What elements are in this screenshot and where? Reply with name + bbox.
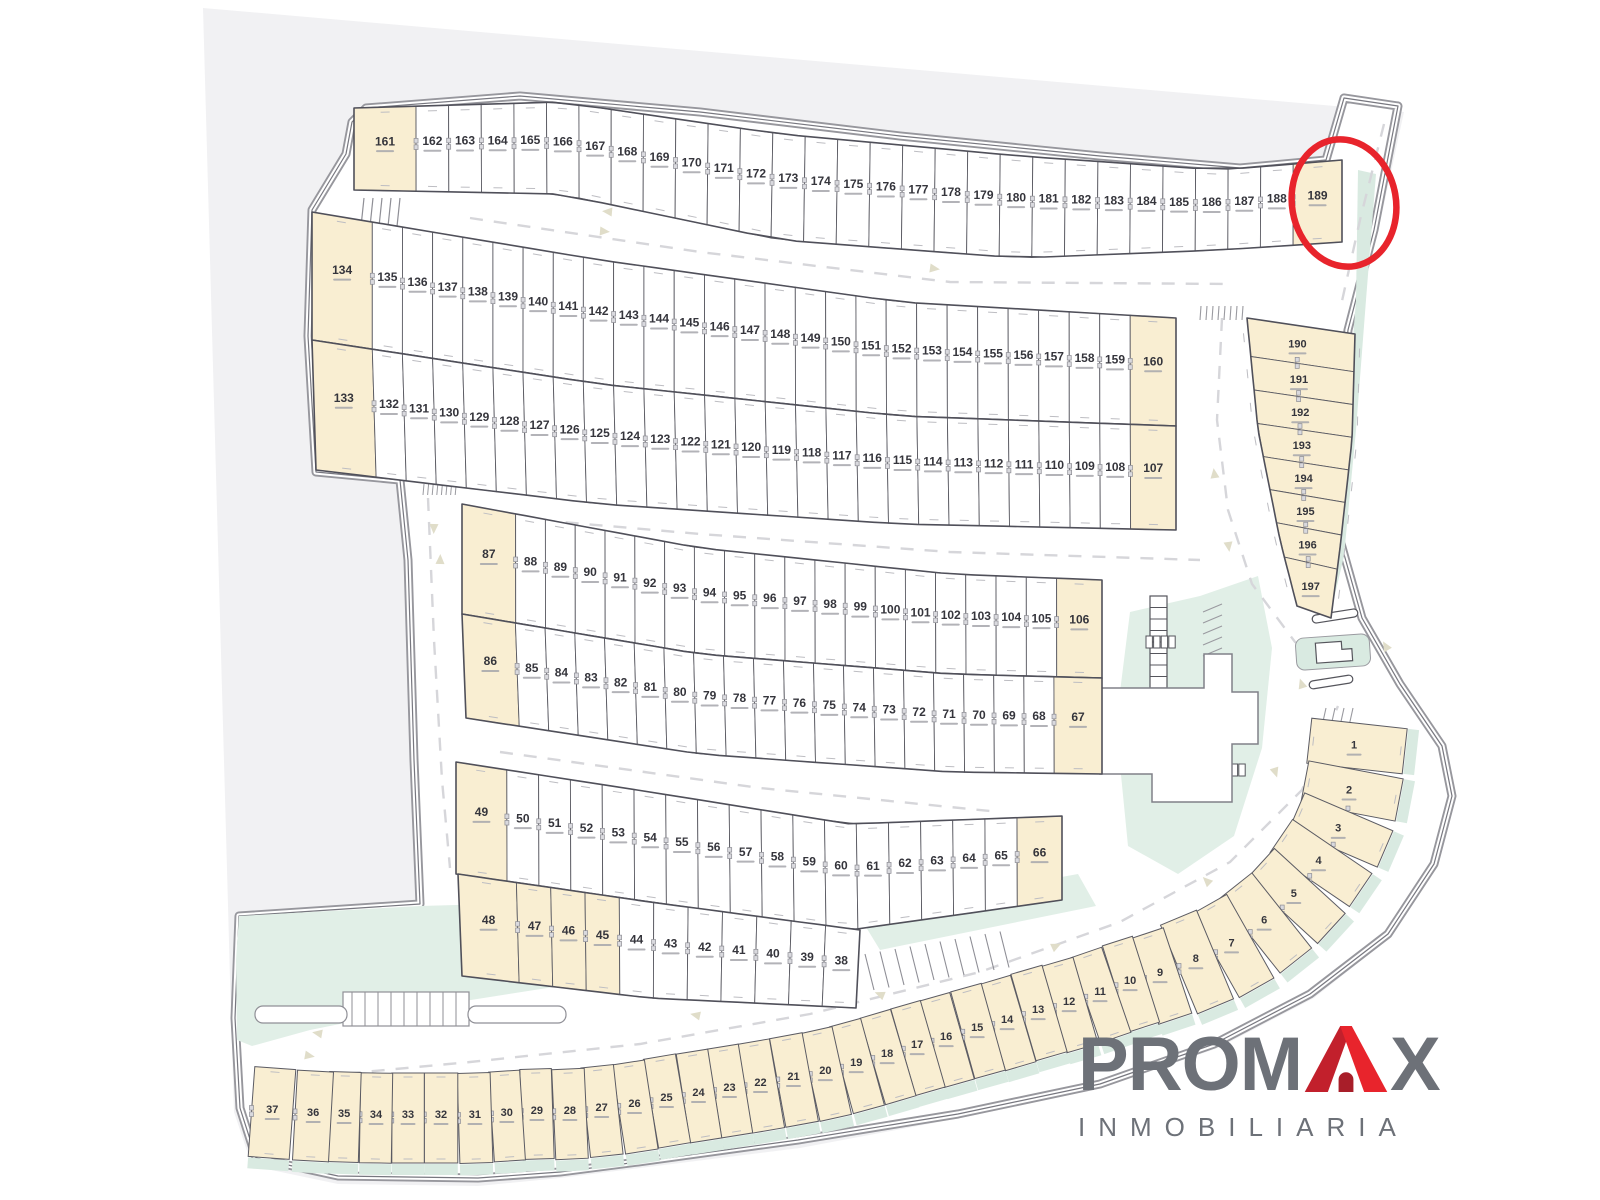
lot-number: 36 <box>307 1107 319 1119</box>
dimension-tick <box>748 509 757 510</box>
meter-icon <box>573 568 577 573</box>
meter-icon <box>462 413 466 418</box>
meter-icon <box>753 601 757 606</box>
lot-145: 145 <box>672 270 704 395</box>
meter-icon <box>1128 465 1132 470</box>
meter-icon <box>550 933 554 938</box>
meter-icon <box>704 441 708 446</box>
meter-icon <box>770 174 774 179</box>
dimension-tick <box>816 238 825 239</box>
meter-icon <box>600 828 604 833</box>
lot-147: 147 <box>733 279 765 402</box>
site-plan: 1611621631641651661671681691701711721731… <box>0 0 1600 1200</box>
lot-130: 130 <box>432 358 466 488</box>
lot-number: 70 <box>972 708 986 722</box>
lot-area-text <box>820 714 838 716</box>
meter-icon <box>574 673 578 678</box>
meter-icon <box>523 428 527 433</box>
meter-icon <box>402 405 406 410</box>
meter-icon <box>293 1109 297 1114</box>
parking-structure <box>343 992 469 1026</box>
lot-area-text <box>1072 208 1090 210</box>
lot-number: 57 <box>739 845 753 859</box>
lot-number: 51 <box>548 816 562 830</box>
lot-number: 24 <box>692 1087 705 1099</box>
meter-icon <box>664 838 668 843</box>
lot-number: 174 <box>811 174 831 188</box>
lot-182: 182 <box>1063 159 1098 256</box>
meter-icon <box>1098 465 1102 470</box>
lot-number: 5 <box>1291 888 1297 900</box>
lot-135: 135 <box>370 222 402 354</box>
lot-area-text <box>1045 474 1063 476</box>
dimension-tick <box>1355 450 1356 459</box>
lot-number: 54 <box>643 830 657 844</box>
meter-icon <box>1037 463 1041 468</box>
meter-icon <box>643 436 647 441</box>
lot-number: 31 <box>469 1109 481 1121</box>
lot-area-text <box>779 187 797 189</box>
lot-157: 157 <box>1037 310 1070 422</box>
lot-number: 45 <box>596 928 610 942</box>
lot-41: 41 <box>720 912 757 1003</box>
meter-icon <box>884 346 888 351</box>
lot-area-text <box>641 592 659 594</box>
meter-icon <box>505 814 509 819</box>
meter-icon <box>813 607 817 612</box>
meter-icon <box>1161 205 1165 210</box>
dimension-tick <box>1272 241 1281 242</box>
meter-icon <box>1128 365 1132 370</box>
lot-number: 124 <box>620 429 640 443</box>
lot-number: 42 <box>698 940 712 954</box>
lot-area-text <box>1295 487 1313 489</box>
lot-73: 73 <box>872 668 905 769</box>
dimension-tick <box>796 756 805 757</box>
lot-area-text <box>1007 206 1025 208</box>
lot-area-text <box>954 471 972 473</box>
meter-icon <box>822 956 826 961</box>
meter-icon <box>951 857 955 862</box>
lot-number: 91 <box>613 570 627 584</box>
dimension-tick <box>916 765 925 766</box>
meter-icon <box>686 943 690 948</box>
meter-icon <box>696 843 700 848</box>
lot-area-text <box>1015 473 1033 475</box>
meter-icon <box>793 341 797 346</box>
lot-162: 162 <box>414 105 449 192</box>
meter-icon <box>1052 714 1056 719</box>
dimension-tick <box>1110 319 1119 320</box>
lot-area-text <box>650 328 668 330</box>
lot-area-text <box>1203 211 1221 213</box>
lot-number: 63 <box>930 854 944 868</box>
lot-172: 172 <box>738 128 773 238</box>
meter-icon <box>919 860 923 865</box>
lot-33: 33 <box>390 1073 425 1163</box>
lot-area-text <box>500 430 518 432</box>
lot-97: 97 <box>783 557 815 663</box>
lot-area-text <box>521 149 539 151</box>
meter-icon <box>934 618 938 623</box>
meter-icon <box>414 138 418 143</box>
lot-number: 12 <box>1063 996 1075 1008</box>
meter-icon <box>577 147 581 152</box>
lot-area-text <box>1093 1000 1108 1002</box>
lot-106: 106 <box>1055 578 1102 678</box>
lot-167: 167 <box>577 105 611 205</box>
lot-area-text <box>552 682 570 684</box>
lot-49: 49 <box>456 762 507 881</box>
lot-number: 137 <box>438 280 458 294</box>
lot-area-text <box>1062 1010 1077 1012</box>
lot-46: 46 <box>550 888 587 991</box>
lot-160: 160 <box>1128 315 1176 426</box>
meter-icon <box>763 330 767 335</box>
lot-44: 44 <box>618 898 654 999</box>
green-edge-strip <box>495 1161 527 1174</box>
lot-area-text <box>803 461 821 463</box>
lot-area-text <box>659 1106 674 1108</box>
lot-area-text <box>560 939 578 941</box>
lot-number: 161 <box>375 134 395 148</box>
lot-number: 65 <box>994 848 1008 862</box>
lot-area-text <box>731 707 749 709</box>
meter-icon <box>569 824 573 829</box>
meter-icon <box>977 467 981 472</box>
lot-area-text <box>896 872 914 874</box>
meter-icon <box>672 319 676 324</box>
lot-71: 71 <box>932 673 965 773</box>
plan-page: 1611621631641651661671681691701711721731… <box>0 0 1600 1200</box>
lot-area-text <box>440 421 458 423</box>
lot-129: 129 <box>462 363 496 492</box>
dimension-tick <box>1239 243 1248 244</box>
lot-187: 187 <box>1226 167 1261 250</box>
meter-icon <box>933 195 937 200</box>
lot-number: 162 <box>422 134 442 148</box>
lot-161: 161 <box>354 106 416 191</box>
lot-number: 84 <box>555 666 569 680</box>
lot-area-text <box>849 1071 864 1073</box>
meter-icon <box>491 299 495 304</box>
meter-icon <box>822 962 826 967</box>
utility-grid <box>1154 636 1160 648</box>
meter-icon <box>1177 964 1181 969</box>
lot-number: 156 <box>1013 348 1033 362</box>
dimension-tick <box>1313 238 1322 239</box>
lot-146: 146 <box>703 275 735 399</box>
meter-icon <box>945 356 949 361</box>
lot-number: 157 <box>1044 350 1064 364</box>
lot-area-text <box>609 841 627 843</box>
meter-icon <box>720 952 724 957</box>
meter-icon <box>250 1106 254 1111</box>
lot-85: 85 <box>515 623 549 731</box>
meter-icon <box>402 411 406 416</box>
meter-icon <box>795 449 799 454</box>
meter-icon <box>1259 203 1263 208</box>
lot-area-text <box>561 438 579 440</box>
lot-area-text <box>621 445 639 447</box>
dimension-tick <box>1019 314 1028 315</box>
meter-icon <box>516 922 520 927</box>
lot-143: 143 <box>612 262 644 389</box>
meter-icon <box>553 426 557 431</box>
meter-icon <box>754 956 758 961</box>
meter-icon <box>583 436 587 441</box>
meter-icon <box>934 612 938 617</box>
meter-icon <box>813 600 817 605</box>
meter-icon <box>1298 430 1302 435</box>
lot-number: 25 <box>660 1092 672 1104</box>
lot-area-text <box>1291 421 1309 423</box>
meter-icon <box>603 573 607 578</box>
lot-number: 139 <box>498 289 518 303</box>
lot-112: 112 <box>977 419 1010 527</box>
meter-icon <box>965 191 969 196</box>
lot-area-text <box>456 149 474 151</box>
lot-number: 166 <box>553 135 573 149</box>
lot-number: 113 <box>954 455 974 469</box>
lot-number: 32 <box>435 1109 447 1121</box>
meter-icon <box>983 854 987 859</box>
lot-number: 95 <box>733 588 747 602</box>
lot-number: 181 <box>1039 192 1059 206</box>
lot-151: 151 <box>854 296 886 415</box>
lot-113: 113 <box>946 418 979 526</box>
meter-icon <box>703 323 707 328</box>
meter-icon <box>791 857 795 862</box>
lot-area-text <box>1014 364 1032 366</box>
lot-number: 22 <box>754 1077 766 1089</box>
meter-icon <box>723 592 727 597</box>
lot-area-text <box>1040 208 1058 210</box>
green-edge-strip <box>424 1164 458 1175</box>
lot-number: 148 <box>770 327 790 341</box>
lot-103: 103 <box>964 575 996 676</box>
meter-icon <box>994 615 998 620</box>
lot-81: 81 <box>634 643 667 749</box>
lot-175: 175 <box>835 139 870 246</box>
lot-number: 193 <box>1293 440 1311 452</box>
utility-grid <box>1161 636 1167 648</box>
lot-area-text <box>1106 368 1124 370</box>
lot-63: 63 <box>919 820 954 920</box>
lot-area-text <box>924 470 942 472</box>
lot-number: 67 <box>1071 710 1085 724</box>
meter-icon <box>521 297 525 302</box>
meter-icon <box>573 574 577 579</box>
meter-icon <box>825 452 829 457</box>
meter-icon <box>1295 357 1299 362</box>
meter-icon <box>977 461 981 466</box>
green-edge-strip <box>359 1164 391 1176</box>
meter-icon <box>703 329 707 334</box>
lot-number: 147 <box>740 323 760 337</box>
lot-area-text <box>786 1085 801 1087</box>
lot-area-text <box>650 166 668 168</box>
lot-56: 56 <box>696 800 730 914</box>
meter-icon <box>400 278 404 283</box>
meter-icon <box>523 422 527 427</box>
meter-icon <box>855 865 859 870</box>
lot-43: 43 <box>652 903 689 1000</box>
meter-icon <box>992 719 996 724</box>
meter-icon <box>1096 198 1100 203</box>
meter-icon <box>693 589 697 594</box>
lot-number: 118 <box>802 446 822 460</box>
lot-number: 8 <box>1193 953 1199 965</box>
lot-area-text <box>472 821 490 823</box>
meter-icon <box>1193 200 1197 205</box>
meter-icon <box>723 695 727 700</box>
lot-98: 98 <box>813 560 845 666</box>
dimension-tick <box>848 240 857 241</box>
lot-66: 66 <box>1015 816 1062 906</box>
meter-icon <box>603 579 607 584</box>
lot-38: 38 <box>822 925 860 1008</box>
lot-area-text <box>742 456 760 458</box>
lot-168: 168 <box>609 110 643 212</box>
lot-number: 138 <box>468 285 488 299</box>
lot-area-text <box>923 359 941 361</box>
lot-area-text <box>618 160 636 162</box>
lot-number: 50 <box>516 811 530 825</box>
lot-area-text <box>753 1091 768 1093</box>
lot-number: 34 <box>370 1109 383 1121</box>
lot-area-text <box>910 1053 925 1055</box>
lot-30: 30 <box>489 1070 526 1162</box>
lot-184: 184 <box>1128 164 1163 254</box>
meter-icon <box>1193 206 1197 211</box>
lot-37: 37 <box>248 1067 296 1160</box>
meter-icon <box>1128 198 1132 203</box>
dimension-tick <box>856 760 865 761</box>
meter-icon <box>823 862 827 867</box>
lot-number: 159 <box>1105 353 1125 367</box>
lot-number: 79 <box>703 689 717 703</box>
lot-area-text <box>641 846 659 848</box>
lot-107: 107 <box>1128 424 1176 530</box>
lot-134: 134 <box>312 212 372 349</box>
lot-120: 120 <box>734 398 768 515</box>
meter-icon <box>537 819 541 824</box>
lot-144: 144 <box>642 266 674 392</box>
brand-subtitle: INMOBILIARIA <box>1078 1112 1518 1143</box>
lot-45: 45 <box>584 893 620 995</box>
meter-icon <box>782 706 786 711</box>
meter-icon <box>884 352 888 357</box>
lot-number: 26 <box>628 1098 640 1110</box>
meter-icon <box>432 416 436 421</box>
dimension-tick <box>914 245 923 246</box>
lot-69: 69 <box>992 675 1024 773</box>
lot-156: 156 <box>1006 308 1039 421</box>
meter-icon <box>1161 199 1165 204</box>
meter-icon <box>872 713 876 718</box>
meter-icon <box>902 715 906 720</box>
lot-number: 16 <box>940 1031 952 1043</box>
lot-number: 131 <box>409 401 429 415</box>
lot-number: 184 <box>1136 194 1156 208</box>
lot-area-text <box>940 723 958 725</box>
lot-area-text <box>1000 1028 1015 1030</box>
meter-icon <box>932 711 936 716</box>
meter-icon <box>505 820 509 825</box>
lot-area-text <box>594 944 612 946</box>
dimension-tick <box>265 1154 274 1155</box>
meter-icon <box>723 701 727 706</box>
meter-icon <box>764 447 768 452</box>
meter-icon <box>728 848 732 853</box>
meter-icon <box>734 450 738 455</box>
lot-174: 174 <box>802 136 837 244</box>
lot-number: 130 <box>439 406 459 420</box>
lot-area-text <box>1188 967 1203 969</box>
lot-area-text <box>844 193 862 195</box>
meter-icon <box>583 430 587 435</box>
lot-number: 81 <box>644 680 658 694</box>
lot-area-text <box>641 696 659 698</box>
lot-181: 181 <box>1030 157 1065 258</box>
lot-area-text <box>409 291 427 293</box>
lot-92: 92 <box>633 536 665 648</box>
meter-icon <box>514 563 518 568</box>
meter-icon <box>431 283 435 288</box>
lot-number: 87 <box>482 547 496 561</box>
lot-area-text <box>737 861 755 863</box>
lot-area-text <box>499 1121 514 1123</box>
meter-icon <box>854 342 858 347</box>
lot-number: 167 <box>585 139 605 153</box>
meter-icon <box>400 285 404 290</box>
lot-133: 133 <box>312 340 376 477</box>
meter-icon <box>1306 557 1310 562</box>
lot-65: 65 <box>983 818 1017 911</box>
lot-area-text <box>1031 861 1049 863</box>
lot-121: 121 <box>704 395 738 513</box>
lot-area-text <box>832 350 850 352</box>
lot-area-text <box>481 670 499 672</box>
green-edge-strip <box>326 1163 358 1175</box>
lot-number: 129 <box>469 410 489 424</box>
meter-icon <box>760 852 764 857</box>
lot-number: 47 <box>528 919 542 933</box>
lot-area-text <box>671 597 689 599</box>
meter-icon <box>604 684 608 689</box>
lot-number: 75 <box>823 698 837 712</box>
lot-124: 124 <box>613 385 647 507</box>
meter-icon <box>1304 529 1308 534</box>
lot-area-text <box>1105 209 1123 211</box>
meter-icon <box>492 417 496 422</box>
meter-icon <box>903 615 907 620</box>
lot-number: 196 <box>1298 539 1316 551</box>
lot-36: 36 <box>293 1070 334 1162</box>
lot-number: 188 <box>1267 192 1287 206</box>
lot-number: 115 <box>893 453 913 467</box>
lot-number: 94 <box>703 585 717 599</box>
meter-icon <box>965 198 969 203</box>
lot-area-text <box>333 279 351 281</box>
lot-number: 173 <box>778 171 798 185</box>
meter-icon <box>1300 457 1304 462</box>
lot-area-text <box>953 361 971 363</box>
lot-number: 125 <box>590 426 610 440</box>
meter-icon <box>551 302 555 307</box>
lot-area-text <box>335 407 353 409</box>
